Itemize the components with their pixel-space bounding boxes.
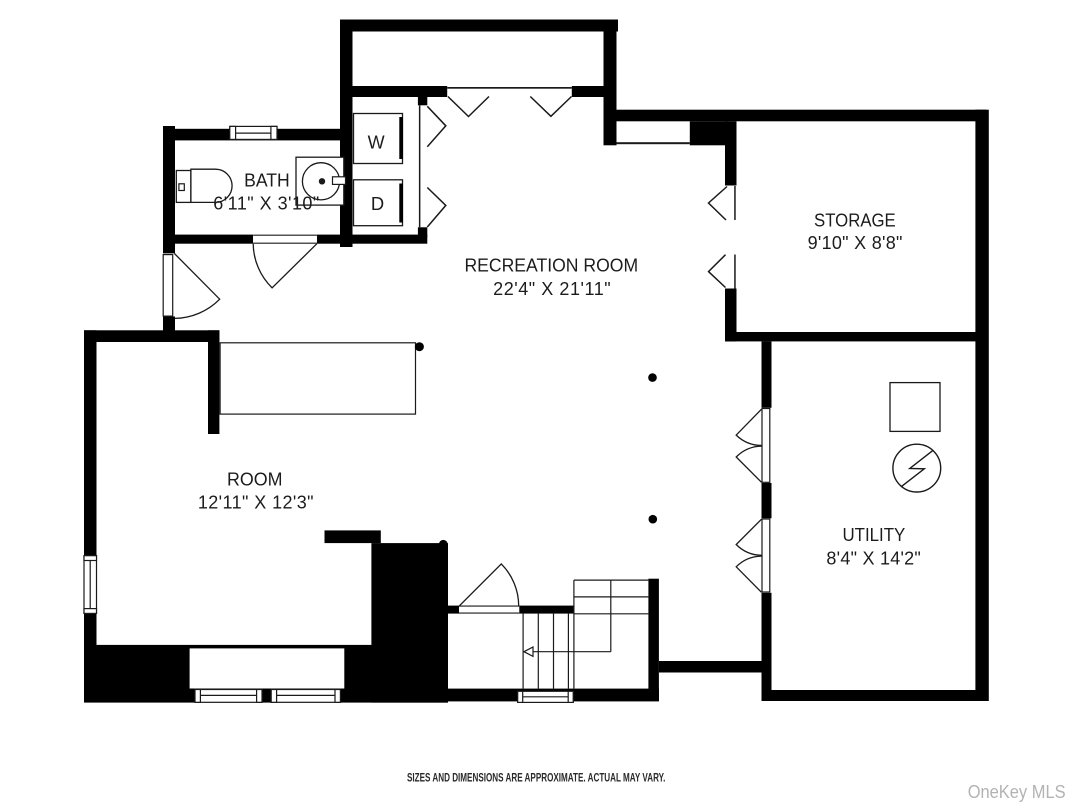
svg-text:22'4" X 21'11": 22'4" X 21'11" (493, 279, 611, 299)
svg-text:BATH: BATH (244, 171, 290, 191)
svg-text:OneKey MLS: OneKey MLS (968, 782, 1066, 802)
svg-text:STORAGE: STORAGE (814, 210, 896, 230)
svg-text:SIZES AND DIMENSIONS ARE APPRO: SIZES AND DIMENSIONS ARE APPROXIMATE. AC… (407, 771, 665, 785)
svg-text:12'11" X 12'3": 12'11" X 12'3" (198, 493, 314, 513)
svg-text:W: W (368, 132, 385, 152)
svg-text:9'10" X 8'8": 9'10" X 8'8" (808, 233, 903, 253)
svg-text:6'11" X 3'10": 6'11" X 3'10" (213, 194, 319, 214)
svg-text:8'4" X 14'2": 8'4" X 14'2" (826, 549, 920, 569)
svg-text:ROOM: ROOM (227, 470, 283, 490)
svg-text:RECREATION ROOM: RECREATION ROOM (464, 256, 638, 276)
svg-text:UTILITY: UTILITY (843, 525, 906, 545)
svg-text:D: D (371, 193, 384, 214)
